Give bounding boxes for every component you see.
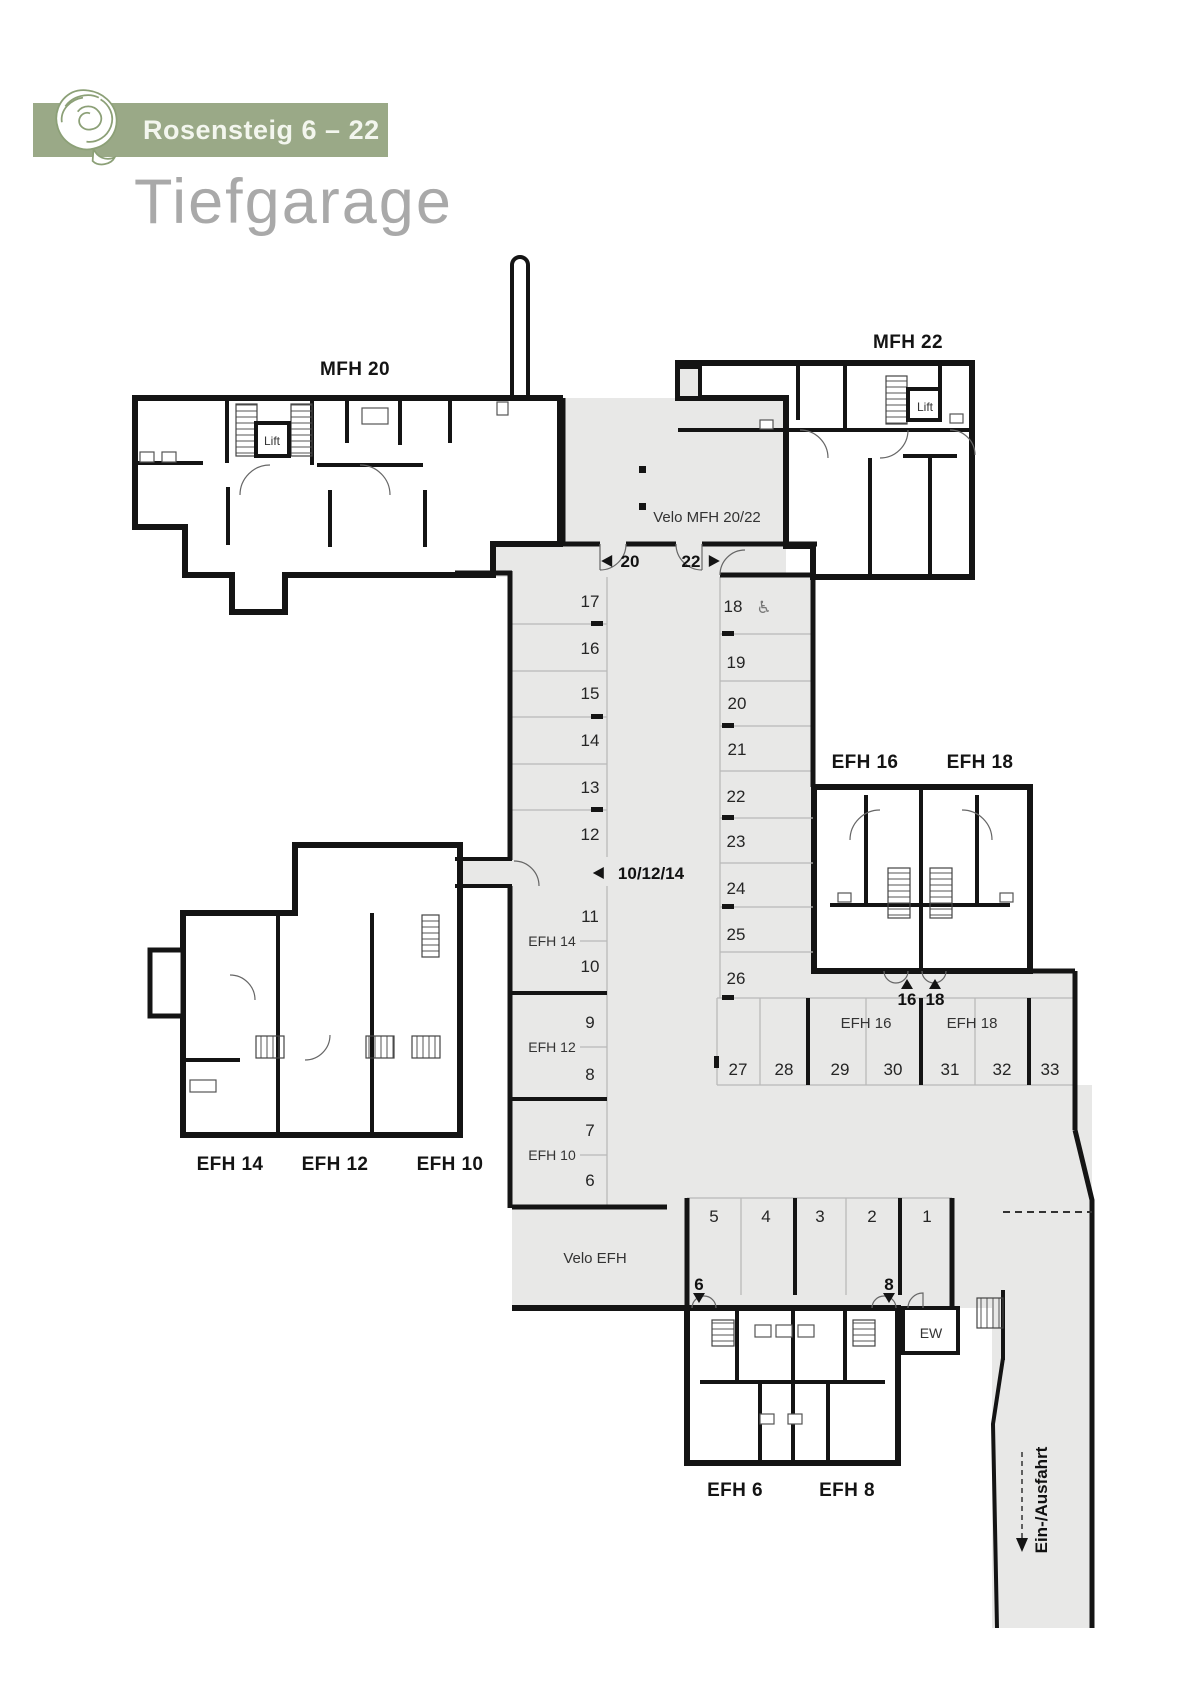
building-label-efh-18: EFH 18 <box>947 752 1014 773</box>
stall-number-26: 26 <box>727 969 746 988</box>
stall-number-22: 22 <box>727 787 746 806</box>
stall-number-18: 18 <box>724 597 743 616</box>
entrance-marker-22: 22 <box>682 552 701 571</box>
building-label-efh-12: EFH 12 <box>302 1154 369 1175</box>
label-stalls-efh16: EFH 16 <box>841 1015 892 1032</box>
entrance-marker-8: 8 <box>884 1275 893 1294</box>
floorplan-page: Rosensteig 6 – 22 Tiefgarage <box>0 0 1200 1702</box>
building-label-efh-6: EFH 6 <box>707 1480 763 1501</box>
stall-number-28: 28 <box>775 1060 794 1079</box>
stall-number-3: 3 <box>815 1207 824 1226</box>
stall-number-5: 5 <box>709 1207 718 1226</box>
building-label-mfh-22: MFH 22 <box>873 332 943 353</box>
label-ew: EW <box>920 1325 943 1341</box>
stall-number-15: 15 <box>581 684 600 703</box>
stall-number-11: 11 <box>581 907 599 926</box>
stall-number-30: 30 <box>884 1060 903 1079</box>
building-label-efh-16: EFH 16 <box>832 752 899 773</box>
building-label-efh-8: EFH 8 <box>819 1480 875 1501</box>
stall-number-13: 13 <box>581 778 600 797</box>
stall-number-25: 25 <box>727 925 746 944</box>
label-stalls-efh14: EFH 14 <box>528 933 576 949</box>
stall-number-32: 32 <box>993 1060 1012 1079</box>
stall-number-21: 21 <box>728 740 747 759</box>
stall-number-2: 2 <box>867 1207 876 1226</box>
entrance-marker-16: 16 <box>898 990 917 1009</box>
stall-number-1: 1 <box>922 1207 931 1226</box>
stall-number-7: 7 <box>585 1121 594 1140</box>
stall-number-23: 23 <box>727 832 746 851</box>
ramp-label: Ein-/Ausfahrt <box>1032 1446 1051 1553</box>
label-velo-efh: Velo EFH <box>563 1250 626 1267</box>
label-lift-mfh20: Lift <box>264 434 281 448</box>
building-label-efh-10: EFH 10 <box>417 1154 484 1175</box>
label-stalls-efh10: EFH 10 <box>528 1147 576 1163</box>
label-stalls-efh18: EFH 18 <box>947 1015 998 1032</box>
stall-number-24: 24 <box>727 879 746 898</box>
stall-number-27: 27 <box>729 1060 748 1079</box>
building-efh14-annex <box>150 950 183 1016</box>
label-lift-mfh22: Lift <box>917 400 934 414</box>
stall-number-14: 14 <box>581 731 600 750</box>
stall-number-4: 4 <box>761 1207 770 1226</box>
stall-number-29: 29 <box>831 1060 850 1079</box>
stall-number-33: 33 <box>1041 1060 1060 1079</box>
stall-number-8: 8 <box>585 1065 594 1084</box>
building-label-efh-14: EFH 14 <box>197 1154 264 1175</box>
garage-floorplan: 1716151413121110987618192021222324252627… <box>0 0 1200 1702</box>
label-velo-mfh: Velo MFH 20/22 <box>653 509 761 526</box>
stall-number-10: 10 <box>581 957 600 976</box>
entrance-marker-6: 6 <box>694 1275 703 1294</box>
stall-number-16: 16 <box>581 639 600 658</box>
stall-number-6: 6 <box>585 1171 594 1190</box>
entrance-marker-10-12-14: 10/12/14 <box>618 864 685 883</box>
stall-number-12: 12 <box>581 825 600 844</box>
mfh22-notch <box>678 367 700 398</box>
wheelchair-icon: ♿ <box>756 598 771 618</box>
entrance-marker-18: 18 <box>926 990 945 1009</box>
building-label-mfh-20: MFH 20 <box>320 359 390 380</box>
stall-number-9: 9 <box>585 1013 594 1032</box>
stall-number-20: 20 <box>728 694 747 713</box>
stall-number-19: 19 <box>727 653 746 672</box>
entrance-marker-20: 20 <box>621 552 640 571</box>
label-stalls-efh12: EFH 12 <box>528 1039 576 1055</box>
stall-number-17: 17 <box>581 592 600 611</box>
building-efh14-12-10 <box>183 845 460 1135</box>
stall-number-31: 31 <box>941 1060 960 1079</box>
